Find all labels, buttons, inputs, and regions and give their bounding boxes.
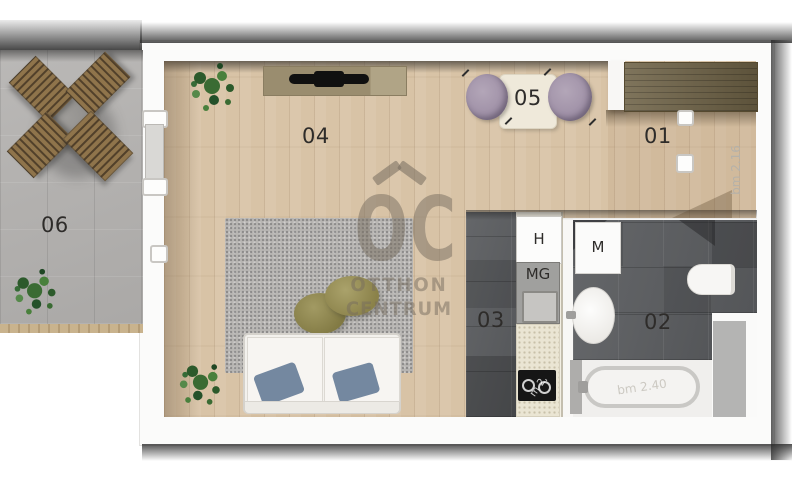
wall-stub (608, 61, 625, 110)
tv-center (314, 71, 344, 87)
room-label-living: 04 (302, 124, 330, 148)
terrace-edge-strip (0, 324, 143, 333)
bath-tile-patch-3 (712, 222, 757, 267)
bath-mat (713, 321, 746, 417)
room-label-hall: 03 (477, 308, 505, 332)
bed-footboard (245, 401, 399, 413)
plant-foliage (204, 78, 220, 94)
dining-chair-right (548, 73, 592, 121)
dining-chair-left (466, 74, 508, 120)
dishwasher: MG (516, 262, 560, 324)
room-label-dining: 05 (514, 86, 542, 110)
plant-foliage (27, 283, 42, 298)
bathtub: bm 2.40 (584, 366, 700, 408)
shadow-top (140, 22, 792, 43)
kitchen-sink (522, 291, 558, 323)
washing-machine-label: M (592, 238, 605, 256)
terrace-door-jamb-bottom (142, 178, 168, 196)
entry-door-mark-top (677, 110, 694, 126)
sink-faucet (566, 311, 576, 319)
room-label-terrace: 06 (41, 213, 69, 237)
entry-wardrobe (624, 62, 758, 112)
floor-plan: 06 05 01 bm 2.16 03 H (0, 0, 800, 481)
shadow-top-terrace (0, 20, 142, 50)
room-left-shadow (164, 61, 200, 417)
terrace-furniture-set (10, 62, 130, 187)
watermark-line1: OTTHON (340, 274, 458, 296)
washing-machine: M (575, 222, 621, 274)
bathroom-sink (572, 287, 615, 344)
toilet (687, 264, 735, 295)
shadow-bottom (142, 444, 792, 461)
fridge: H (516, 216, 562, 264)
dishwasher-label: MG (517, 265, 559, 283)
entry-door-mark-bottom (676, 154, 694, 173)
left-wall-niche (150, 245, 168, 263)
bath-ceiling-height: bm 2.40 (605, 375, 678, 399)
terrace-door-leaf (145, 124, 164, 182)
shadow-right (771, 40, 792, 460)
watermark-line2: CENTRUM (340, 298, 458, 320)
cooktop: m 2, (518, 370, 556, 401)
bed (243, 333, 401, 414)
room-label-bathroom: 02 (644, 310, 672, 334)
terrace-top-shadow (0, 50, 143, 62)
fridge-label: H (533, 230, 544, 248)
room-label-entry: 01 (644, 124, 672, 148)
hall-tile-patch-2 (466, 356, 516, 417)
entry-ceiling-height: bm 2.16 (729, 125, 743, 215)
tub-faucet (578, 381, 588, 393)
hall-tile-patch-1 (466, 260, 516, 308)
watermark-logo: OC (354, 188, 443, 272)
